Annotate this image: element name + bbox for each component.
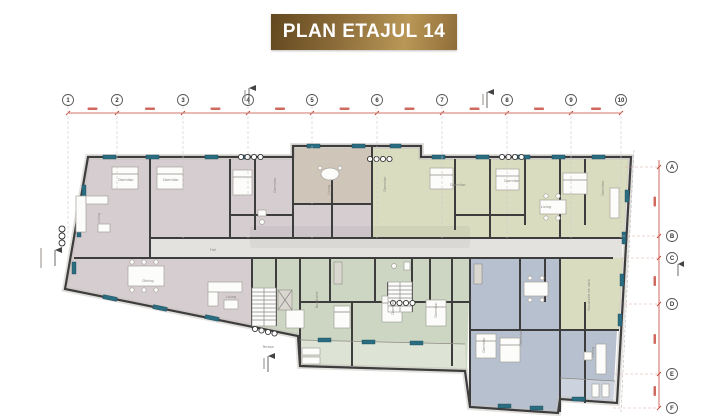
- room-label: Dormitor: [273, 177, 277, 193]
- grid-bubble: F: [670, 406, 674, 412]
- room-label: Dormitor: [601, 180, 605, 196]
- grid-bubble: D: [670, 302, 675, 308]
- grid-bubble: C: [670, 256, 675, 262]
- room-label: Living: [97, 213, 101, 223]
- room-label: Terasa: [261, 345, 273, 349]
- level-marker: [482, 89, 494, 108]
- dimension-values-top: [88, 108, 602, 111]
- room-label: Bucatarie: [315, 292, 319, 309]
- grid-bubble: E: [670, 372, 674, 378]
- room-label: Dormitor: [434, 302, 438, 318]
- room-label: Dormitor: [391, 299, 395, 315]
- zone-apartment-olive: [372, 148, 629, 238]
- grid-bubbles-right: A B C D E F: [667, 162, 678, 414]
- stairs-core-1: [252, 288, 276, 326]
- room-label: Dormitor: [482, 337, 486, 353]
- floor-plan-page: PLAN ETAJUL 14: [0, 0, 720, 420]
- dimension-values-right: [654, 197, 657, 397]
- floor-plan-svg: 1 2 3 4 5 6 7 8 9 10: [0, 0, 720, 420]
- room-label: Living: [226, 295, 236, 299]
- room-label: Hol: [210, 248, 216, 252]
- room-label: Dormitor: [163, 178, 179, 182]
- level-marker: [678, 261, 684, 276]
- room-label: Living: [541, 205, 551, 209]
- grid-bubbles-top: 1 2 3 4 5 6 7 8 9 10: [63, 95, 627, 106]
- room-label: Dormitor: [118, 178, 134, 182]
- room-label: Dormitor: [450, 183, 466, 187]
- grid-bubble: 10: [618, 98, 625, 104]
- room-label: Dormitor: [383, 176, 387, 192]
- elevator: [278, 290, 292, 310]
- level-marker: [263, 353, 275, 372]
- room-label: Dining: [142, 279, 153, 283]
- zone-apartment-olive-lower: [560, 258, 623, 330]
- room-label: Bucatarie de vara: [587, 279, 591, 310]
- grid-bubble: A: [670, 165, 675, 171]
- level-marker: [40, 247, 62, 268]
- room-label: Living: [327, 185, 331, 195]
- room-label: Living: [591, 347, 595, 357]
- grid-bubble: B: [670, 234, 675, 240]
- room-label: Dormitor: [519, 330, 523, 346]
- room-label: Dormitor: [504, 179, 520, 183]
